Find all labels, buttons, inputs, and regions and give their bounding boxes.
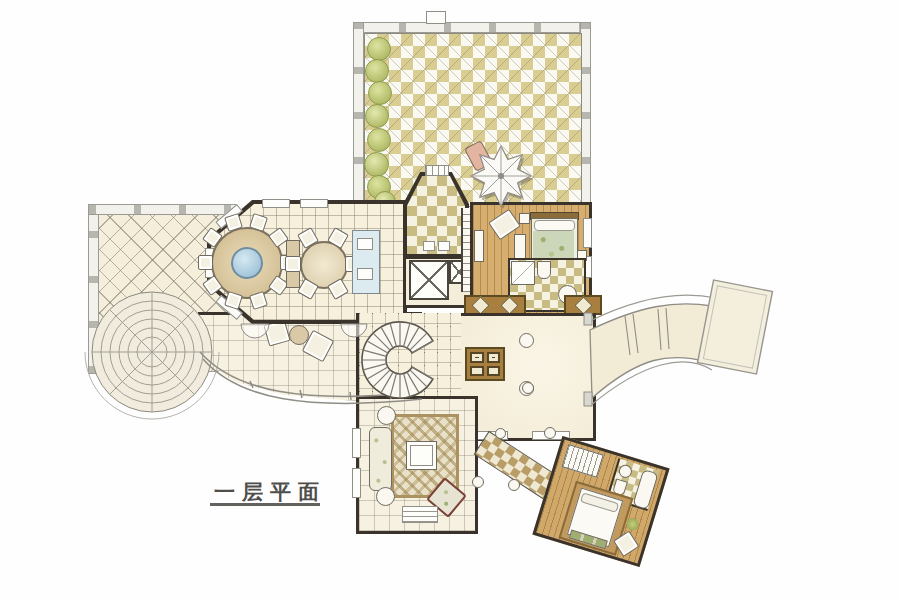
floor-border-band (564, 295, 602, 315)
top-terrace-floor (364, 33, 582, 207)
medallion-tile (470, 366, 484, 377)
stepping-light (495, 428, 506, 439)
medallion-tile (487, 352, 501, 363)
left-terrace-railing-left (88, 208, 99, 374)
sofa (369, 427, 392, 491)
breakfast-chair (285, 256, 301, 272)
window (583, 218, 592, 248)
elevator (409, 260, 449, 300)
diamond-inlay (500, 296, 518, 314)
nightstand (519, 213, 530, 224)
shrub (367, 37, 391, 61)
hall-floor-medallion (465, 347, 505, 381)
top-terrace-railing-top (353, 22, 591, 33)
window (352, 468, 361, 498)
window (262, 199, 290, 208)
shrub (365, 59, 389, 83)
appliance (438, 241, 450, 251)
shower (511, 261, 535, 285)
plan-title-underline (210, 503, 320, 506)
shrub (368, 81, 392, 105)
dining-table-lazy-susan (231, 247, 263, 279)
floor-border-band (464, 295, 526, 315)
plan-title: 一层平面 (214, 478, 326, 506)
stepping-light (522, 382, 534, 394)
dining-chair (198, 255, 213, 270)
entry-step (402, 506, 438, 523)
top-terrace-railing-left (353, 22, 364, 210)
stepping-light (472, 476, 484, 488)
appliance (423, 241, 435, 251)
curved-corridor (588, 280, 772, 406)
bed-floral-blanket (533, 231, 574, 260)
round-side-table (376, 487, 395, 506)
diamond-inlay (574, 296, 592, 314)
plant (625, 517, 640, 532)
diamond-inlay (471, 296, 489, 314)
left-terrace-railing-top (88, 204, 236, 215)
terrace-side-table (289, 325, 309, 345)
toilet (537, 261, 551, 279)
window (352, 428, 361, 458)
stepping-light (544, 427, 556, 439)
window (300, 199, 328, 208)
medallion-tile (470, 352, 484, 363)
stepping-light (508, 479, 520, 491)
terrace-gate (426, 11, 446, 24)
shrub (367, 128, 391, 152)
dresser (474, 230, 484, 262)
round-side-table (377, 406, 396, 425)
floor-plan-canvas: 一层平面 (0, 0, 900, 600)
cooktop (357, 238, 373, 250)
closet (561, 444, 603, 478)
guest-suite (532, 436, 669, 567)
stair-hall-floor (356, 313, 461, 405)
shrub (364, 152, 389, 177)
shrub (365, 104, 389, 128)
entry-steps (425, 165, 449, 176)
hall-column (519, 333, 534, 348)
bed-pillows (534, 220, 575, 231)
coffee-table (406, 441, 437, 470)
medallion-tile (487, 366, 501, 377)
sink (357, 268, 373, 280)
